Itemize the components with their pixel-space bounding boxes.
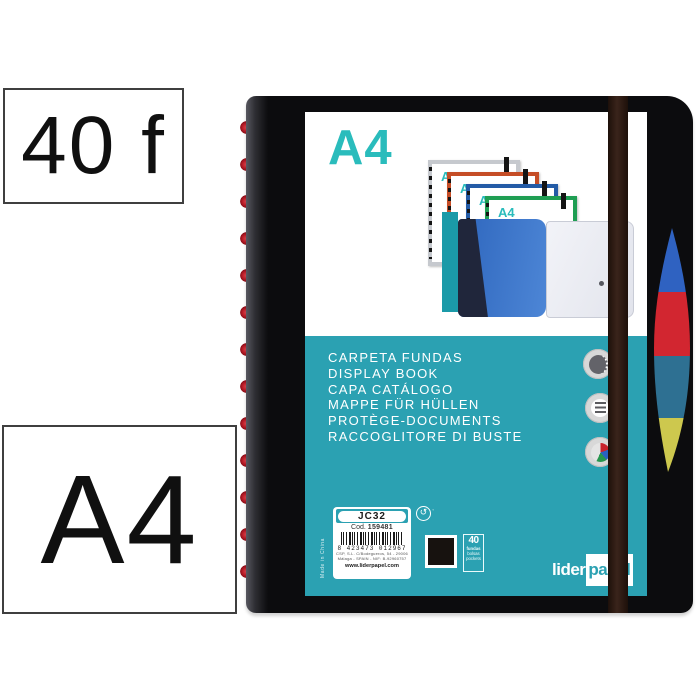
website-url: www.liderpapel.com: [336, 563, 408, 569]
model-code: JC32: [338, 511, 406, 522]
tab-blue: [650, 228, 694, 292]
tab-yellow: [650, 418, 694, 472]
quantity-box: 40 fundas bolsas pockets: [463, 534, 484, 572]
manufacturer-address-line2: Málaga - SPAIN - NIF: B-92960757: [336, 557, 408, 562]
product-name-en: DISPLAY BOOK: [328, 366, 523, 382]
brand-prefix: lider: [552, 560, 585, 580]
product-code-line: Cod. 159481: [336, 524, 408, 531]
tab-steel: [650, 356, 694, 418]
sheets-count-callout: 40 f: [3, 88, 184, 204]
front-folder-blue: [458, 219, 546, 317]
folder-corner-shadow: [458, 219, 546, 317]
quantity-unit-en: pockets: [464, 556, 483, 561]
product-names: CARPETA FUNDAS DISPLAY BOOK CAPA CATÁLOG…: [328, 350, 523, 445]
made-in-text: Made in China: [320, 514, 329, 578]
barcode: [341, 532, 403, 545]
snap-button: [599, 281, 604, 286]
product-name-it: RACCOGLITORE DI BUSTE: [328, 429, 523, 445]
assorted-colors-glyph: [591, 443, 610, 462]
tab-red: [650, 292, 694, 356]
product-photo: 40 f A4 A4 A4 A4 A4 A4: [0, 0, 700, 700]
product-name-es: CARPETA FUNDAS: [328, 350, 523, 366]
format-title: A4: [328, 120, 393, 176]
sheets-count-text: 40 f: [21, 99, 166, 193]
code-prefix: Cod.: [351, 524, 366, 531]
cover-label: A4 A4 A4 A4 A4 CA: [305, 112, 647, 596]
product-name-de: MAPPE FÜR HÜLLEN: [328, 397, 523, 413]
divider-tabs: [650, 228, 694, 472]
color-swatch-black: [425, 535, 457, 568]
disc-binding-glyph: [589, 355, 608, 374]
green-dot-icon: ↺°: [416, 506, 431, 521]
mini-format-label: A4: [498, 205, 573, 220]
paper-format-callout: A4: [2, 425, 237, 614]
mini-display-book-teal-edge: [442, 212, 458, 312]
product-code: 159481: [368, 524, 393, 531]
reference-label: JC32 Cod. 159481 8 423473 012967 CSP, S.…: [333, 507, 411, 579]
green-dot-glyph: ↺: [420, 507, 428, 517]
elastic-band: [608, 96, 628, 613]
product-name-pt: CAPA CATÁLOGO: [328, 382, 523, 398]
product-name-fr: PROTÈGE-DOCUMENTS: [328, 413, 523, 429]
model-header: JC32: [336, 509, 408, 523]
quantity-value: 40: [464, 536, 483, 546]
pockets-glyph: [591, 399, 609, 417]
paper-format-text: A4: [40, 447, 198, 592]
